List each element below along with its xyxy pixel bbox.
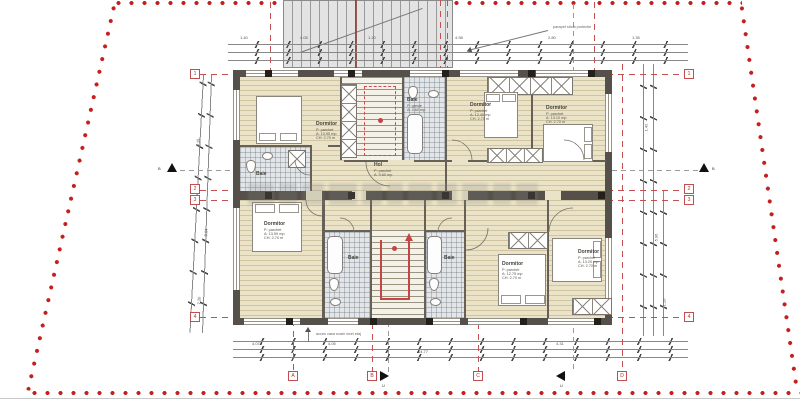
grid-line-vd [622, 64, 623, 372]
boundary-left [25, 1, 118, 391]
grid-marker-left-1: 1 [190, 69, 200, 79]
watermark [248, 183, 648, 205]
grid-marker-d: D [617, 371, 627, 381]
grid-marker-left-4: 4 [190, 312, 200, 322]
dim-chain-top-1 [228, 41, 688, 48]
dim-bottom-total: 14.77 [418, 349, 428, 354]
dim-chain-bottom-3 [233, 354, 688, 361]
floor-plan-sheet: 1.40 4.05 1.20 4.98 2.80 1.35 4.07 4.05 … [0, 0, 800, 400]
section-line-b-right [612, 170, 700, 171]
dim-top-3: 1.20 [368, 35, 376, 40]
dim-right-2: 5.96 [653, 234, 658, 242]
note-top: parapet sticla protectie [553, 25, 591, 29]
section-triangle-left [556, 371, 565, 381]
note-bottom: acces casa scarii nivel etaj [316, 332, 361, 336]
dim-top-5: 2.80 [548, 35, 556, 40]
room-label-baie-br: Baie [444, 256, 455, 262]
grid-marker-a: A [288, 371, 298, 381]
boundary-bottom [28, 390, 800, 396]
grid-marker-right-2: 2 [684, 184, 694, 194]
grid-marker-left-2: 2 [190, 184, 200, 194]
dim-top-2: 4.05 [300, 35, 308, 40]
grid-marker-right-1: 1 [684, 69, 694, 79]
dim-left-3: 2.20 [196, 296, 202, 304]
section-label-b1: B [158, 166, 161, 171]
room-label-baie-tl: Baie [256, 172, 267, 178]
grid-marker-right-3: 3 [684, 195, 694, 205]
room-label-baie-bl: Baie [348, 256, 359, 262]
dim-top-6: 1.35 [632, 35, 640, 40]
room-label-hol: HolP: parchetA: 9.60 mp [374, 163, 392, 177]
boundary-right [738, 2, 800, 393]
note-bottom-leader [308, 331, 309, 342]
room-label-dormitor-d2: DormitorP: parchetA: 13.20 mpCH: 2.70 m [578, 250, 599, 269]
dim-left-2: 8.64 [203, 228, 209, 236]
note-bottom-arrow [305, 327, 311, 332]
sheet-baseline [0, 398, 800, 399]
dim-top-4: 4.98 [455, 35, 463, 40]
room-label-baie-mid: BaieP: gresieA: 4.60 mp [407, 98, 425, 112]
grid-marker-c: C [473, 371, 483, 381]
grid-marker-right-4: 4 [684, 312, 694, 322]
room-label-dormitor-d1: DormitorP: parchetA: 13.10 mpCH: 2.70 m [546, 106, 567, 125]
dim-chain-bottom-1 [233, 338, 688, 345]
section-label-b2: B [712, 166, 715, 171]
section-line-b-left [180, 170, 233, 171]
room-label-dormitor-tl: DormitorP: parchetA: 13.95 mpCH: 2.70 m [316, 122, 337, 141]
section-triangle-mid-right [699, 163, 709, 172]
grid-line-v2 [594, 2, 595, 74]
section-label-u1: U [382, 383, 385, 388]
dim-chain-bottom-2 [233, 346, 688, 353]
dim-chain-right-3 [660, 190, 667, 336]
section-label-u2: U [560, 383, 563, 388]
grid-marker-left-3: 3 [190, 195, 200, 205]
dim-left-1: 3.15 [195, 138, 201, 146]
dim-right-1: 1.42 [643, 124, 648, 132]
grid-line-va [293, 320, 294, 372]
grid-marker-b: B [367, 371, 377, 381]
dim-right-3: 1.10 [661, 299, 666, 307]
dim-bottom-3: 4.31 [556, 341, 564, 346]
dim-bottom-2: 4.05 [328, 341, 336, 346]
section-triangle-mid-left [167, 163, 177, 172]
dim-chain-top-3 [228, 57, 688, 64]
dim-chain-top-2 [228, 49, 688, 56]
section-triangle-right [380, 371, 389, 381]
dim-bottom-1: 4.07 [252, 341, 260, 346]
room-label-dormitor-bl: DormitorP: parchetA: 13.50 mpCH: 2.70 m [264, 222, 285, 241]
dim-top-1: 1.40 [240, 35, 248, 40]
room-label-dormitor-c2: DormitorP: parchetA: 12.75 mpCH: 2.70 m [502, 262, 523, 281]
room-label-dormitor-c1: DormitorP: parchetA: 12.40 mpCH: 2.70 m [470, 103, 491, 122]
